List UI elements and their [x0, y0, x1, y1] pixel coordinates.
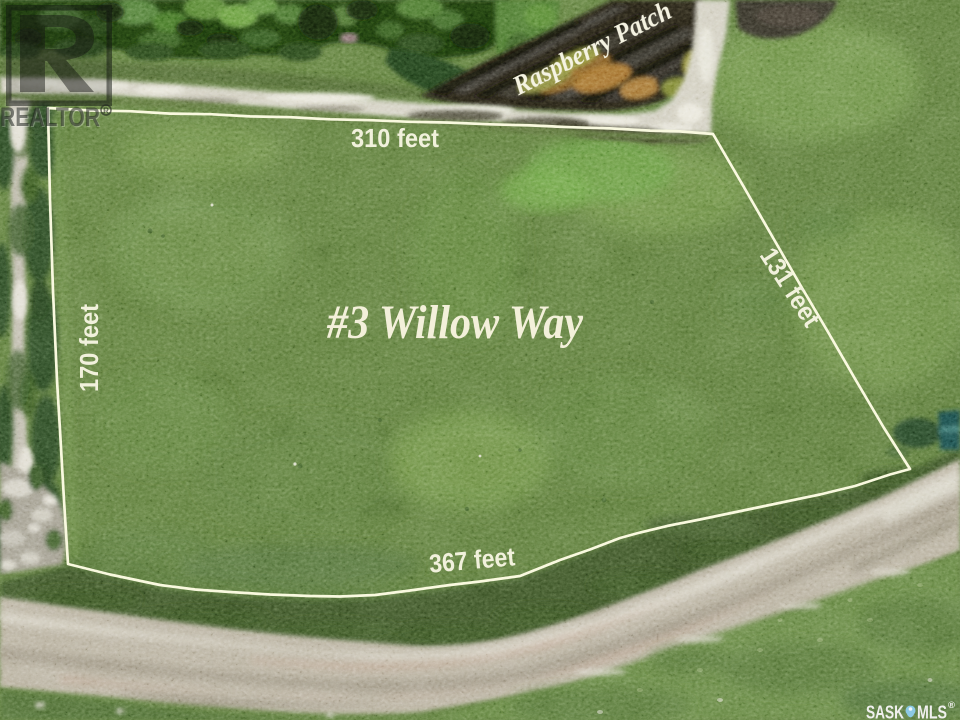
svg-text:®: ®	[948, 700, 955, 711]
svg-text:REALTOR: REALTOR	[0, 102, 100, 132]
svg-text:170 feet: 170 feet	[74, 304, 104, 392]
svg-text:SASK: SASK	[866, 703, 904, 720]
svg-text:R: R	[103, 107, 109, 116]
svg-text:310 feet: 310 feet	[351, 123, 439, 153]
svg-text:MLS: MLS	[917, 703, 947, 720]
svg-text:#3 Willow Way: #3 Willow Way	[326, 296, 583, 349]
